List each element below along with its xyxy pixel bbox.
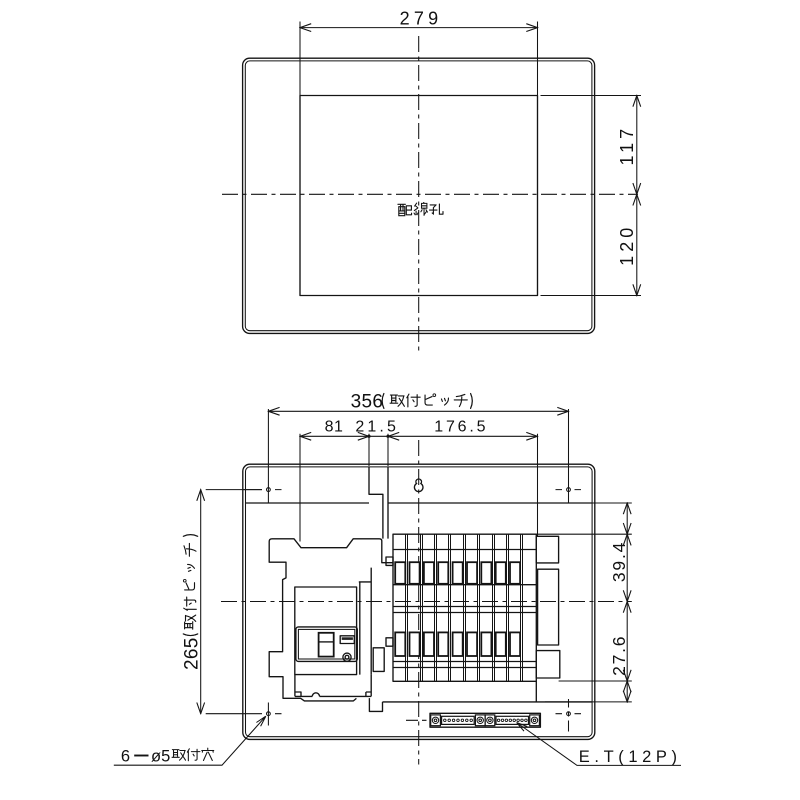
svg-text:ø5: ø5 [151, 748, 170, 766]
svg-text:81: 81 [325, 419, 344, 436]
svg-text:176.5: 176.5 [434, 419, 488, 436]
svg-text:E.T(12P): E.T(12P) [579, 748, 682, 766]
svg-text:356: 356 [351, 391, 384, 412]
svg-text:120: 120 [617, 224, 637, 266]
svg-text:39.4: 39.4 [609, 541, 629, 582]
svg-text:279: 279 [400, 8, 443, 28]
svg-text:21.5: 21.5 [355, 419, 399, 436]
svg-text:6: 6 [121, 748, 130, 766]
svg-text:27.6: 27.6 [609, 635, 629, 676]
svg-text:117: 117 [617, 125, 637, 166]
svg-text:265: 265 [182, 637, 203, 670]
